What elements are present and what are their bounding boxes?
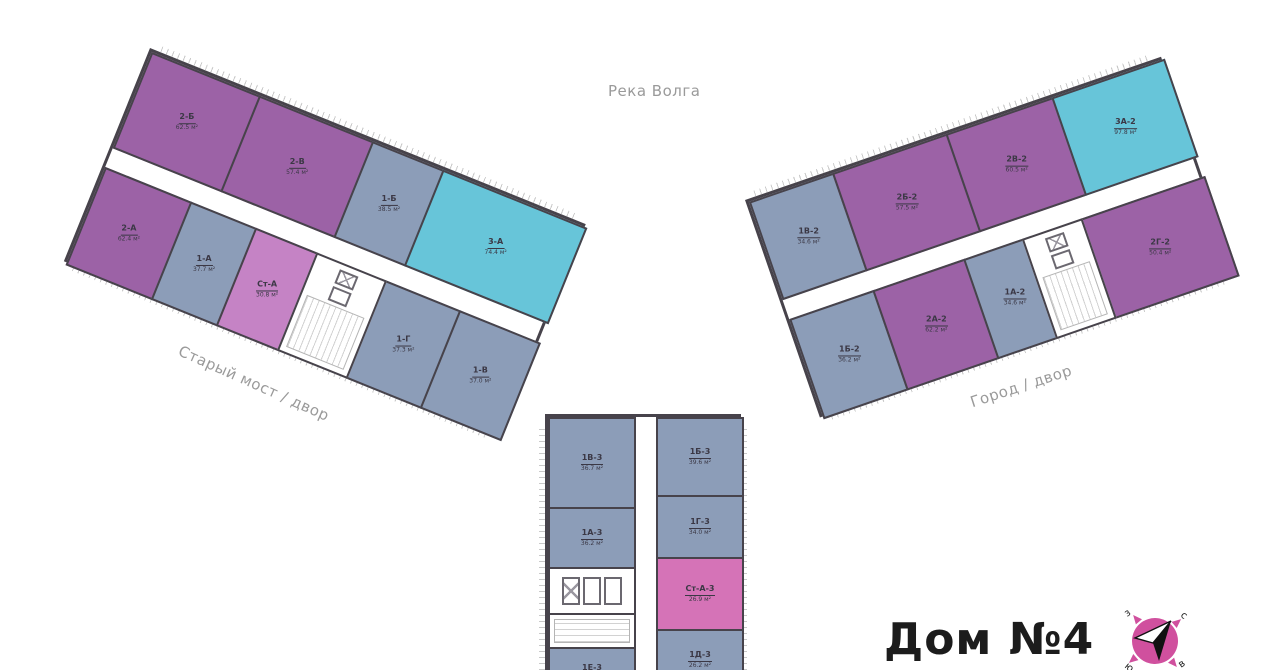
elevator-core [548,567,636,615]
elevator-shaft-icon [604,577,622,605]
building-wing-right: 1В-234.6 м²2Б-257.5 м²2В-260.5 м²3А-297.… [745,57,1236,418]
apartment-1А-3[interactable]: 1А-336.2 м² [548,507,636,569]
apartment-id: 1В-3 [581,454,604,465]
apartment-id: 1Е-3 [581,664,603,670]
apartment-label: 3-А74.4 м² [485,238,507,256]
apartment-id: 1Д-3 [688,651,712,662]
apartment-area: 57.5 м² [896,205,918,212]
apartment-area: 34.0 м² [689,530,711,537]
apartment-id: 1Б-3 [689,448,712,459]
apartment-label: 1В-234.6 м² [797,227,820,245]
apartment-1Д-3[interactable]: 1Д-326.2 м² [656,629,744,670]
apartment-id: 2-В [289,158,306,169]
apartment-area: 57.4 м² [286,169,308,176]
apartment-id: 1Б-2 [838,345,861,356]
apartment-area: 26.2 м² [689,663,711,670]
apartment-id: 2В-2 [1005,156,1028,167]
apartment-id: Ст-А [256,280,278,291]
apartment-id: 2-А [120,224,137,235]
apartment-1В-3[interactable]: 1В-336.7 м² [548,417,636,509]
apartment-area: 62.4 м² [118,236,140,243]
apartment-area: 39.6 м² [689,460,711,467]
label-city-yard: Город / двор [968,361,1074,411]
apartment-1Б-3[interactable]: 1Б-339.6 м² [656,417,744,497]
apartment-id: 2Б-2 [895,193,918,204]
apartment-area: 30.8 м² [256,292,278,299]
apartment-area: 37.3 м² [392,347,414,354]
apartment-label: 2-В57.4 м² [286,158,308,176]
apartment-area: 38.5 м² [378,206,400,213]
apartment-id: 1В-2 [797,227,820,238]
apartment-id: 3А-2 [1114,118,1137,129]
apartment-label: 3А-297.8 м² [1114,118,1137,136]
apartment-label: 1-Г37.3 м² [392,335,414,353]
apartment-area: 26.9 м² [689,597,711,604]
apartment-area: 34.6 м² [797,239,819,246]
apartment-label: 2Г-250.4 м² [1149,238,1171,256]
wing-right-apartments: 1В-234.6 м²2Б-257.5 м²2В-260.5 м²3А-297.… [749,61,1159,202]
apartment-label: 1-А37.7 м² [193,255,215,273]
wing-left-apartments: 2-Б62.5 м²2-В57.4 м²1-Б38.5 м²3-А74.4 м²… [152,52,582,226]
building-tower-bottom: 1В-336.7 м²1Б-339.6 м²1А-336.2 м²1Г-334.… [545,414,741,670]
compass-south-label: ю [1122,661,1136,670]
apartment-1Е-3[interactable]: 1Е-3 [548,647,636,670]
apartment-area: 36.2 м² [581,541,603,548]
house-title: Дом №4 [884,614,1094,665]
apartment-area: 62.2 м² [925,327,947,334]
apartment-label: 2Б-257.5 м² [895,193,918,211]
building-wing-left: 2-Б62.5 м²2-В57.4 м²1-Б38.5 м²3-А74.4 м²… [64,48,586,437]
apartment-label: 1Д-326.2 м² [688,651,712,669]
elevator-shaft-icon [583,577,601,605]
apartment-area: 34.6 м² [1003,300,1025,307]
apartment-id: 1-А [195,255,212,266]
apartment-label: 2-А62.4 м² [118,224,140,242]
apartment-label: 2А-262.2 м² [925,315,948,333]
apartment-id: 1-Г [395,335,411,346]
balcony-ticks [539,425,545,670]
staircase [1042,261,1108,330]
elevator-shaft-icon [562,577,580,605]
compass-west-label: з [1122,607,1133,619]
apartment-id: 2А-2 [925,315,948,326]
staircase [286,295,364,370]
apartment-id: 1Г-3 [689,518,711,529]
apartment-area: 37.7 м² [193,267,215,274]
apartment-label: 1-В37.0 м² [469,366,491,384]
apartment-label: 2В-260.5 м² [1005,156,1028,174]
apartment-area: 60.5 м² [1005,167,1027,174]
apartment-id: 2-Б [178,113,195,124]
apartment-label: 1А-336.2 м² [581,529,604,547]
apartment-label: 1Е-3 [581,664,603,670]
apartment-id: 1А-2 [1003,288,1026,299]
apartment-id: 2Г-2 [1149,238,1171,249]
apartment-id: 1А-3 [581,529,604,540]
label-river: Река Волга [608,82,700,100]
apartment-Ст-А-3[interactable]: Ст-А-326.9 м² [656,557,744,631]
compass-east-label: в [1176,658,1187,670]
staircase [548,613,636,649]
apartment-id: 1-Б [381,195,398,206]
apartment-area: 36.2 м² [838,357,860,364]
apartment-area: 50.4 м² [1149,250,1171,257]
apartment-area: 37.0 м² [469,378,491,385]
apartment-id: 3-А [487,238,504,249]
apartment-label: 1Б-236.2 м² [838,345,861,363]
apartment-label: 1Г-334.0 м² [689,518,711,536]
apartment-1Г-3[interactable]: 1Г-334.0 м² [656,495,744,559]
apartment-label: Ст-А30.8 м² [256,280,278,298]
apartment-area: 62.5 м² [176,125,198,132]
compass-rose-icon: з с в ю [1118,604,1192,670]
floor-plan-page: 2-Б62.5 м²2-В57.4 м²1-Б38.5 м²3-А74.4 м²… [0,0,1280,670]
apartment-area: 36.7 м² [581,466,603,473]
apartment-area: 74.4 м² [485,250,507,257]
apartment-id: Ст-А-3 [685,585,716,596]
apartment-label: 1В-336.7 м² [581,454,604,472]
apartment-area: 97.8 м² [1114,130,1136,137]
apartment-label: 2-Б62.5 м² [176,113,198,131]
apartment-label: Ст-А-326.9 м² [685,585,716,603]
apartment-label: 1Б-339.6 м² [689,448,712,466]
apartment-label: 1-Б38.5 м² [378,195,400,213]
apartment-id: 1-В [472,366,489,377]
apartment-label: 1А-234.6 м² [1003,288,1026,306]
